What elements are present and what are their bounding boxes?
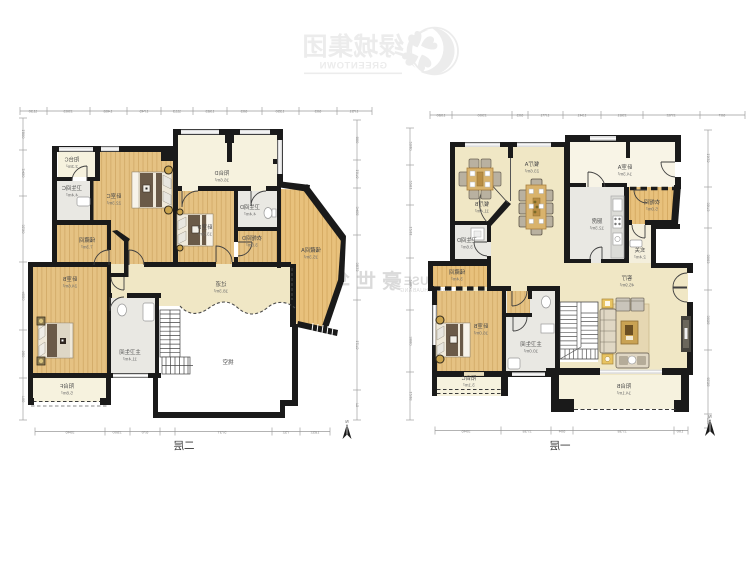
svg-text:1852: 1852 (310, 429, 320, 434)
svg-text:2961: 2961 (617, 112, 627, 117)
svg-text:603: 603 (314, 108, 321, 113)
svg-text:衣帽间D: 衣帽间D (242, 234, 262, 242)
svg-text:5737: 5737 (217, 429, 227, 434)
svg-text:3946: 3946 (461, 428, 471, 433)
svg-text:阳台B: 阳台B (616, 382, 631, 390)
svg-text:1246: 1246 (408, 392, 413, 402)
svg-text:卫生间C: 卫生间C (62, 184, 82, 192)
svg-text:22.3m²: 22.3m² (106, 201, 121, 206)
svg-text:2600: 2600 (112, 429, 122, 434)
svg-text:2702: 2702 (666, 112, 676, 117)
svg-text:卧室B: 卧室B (62, 275, 77, 283)
svg-text:15.3m²: 15.3m² (303, 255, 318, 260)
svg-text:3.4m²: 3.4m² (451, 277, 463, 282)
svg-text:980: 980 (20, 351, 25, 358)
svg-text:3.0m²: 3.0m² (246, 243, 258, 248)
svg-text:卧室B: 卧室B (473, 322, 488, 330)
svg-text:11.4m²: 11.4m² (123, 357, 137, 362)
svg-text:1915: 1915 (705, 154, 710, 164)
svg-text:2.4m²: 2.4m² (634, 255, 646, 260)
svg-text:二层: 二层 (174, 440, 195, 452)
svg-text:客厅: 客厅 (621, 274, 632, 282)
svg-text:1751: 1751 (349, 108, 359, 113)
svg-text:752: 752 (282, 429, 289, 434)
svg-text:2490: 2490 (20, 169, 25, 179)
svg-text:卫生间D: 卫生间D (240, 203, 260, 211)
svg-text:1745: 1745 (139, 108, 149, 113)
svg-text:11.4m²: 11.4m² (475, 209, 489, 214)
svg-text:一层: 一层 (550, 440, 571, 452)
svg-text:1076: 1076 (354, 170, 359, 180)
svg-text:14.1m²: 14.1m² (616, 391, 631, 396)
svg-text:100: 100 (676, 428, 683, 433)
svg-text:2738: 2738 (617, 428, 627, 433)
svg-text:3058: 3058 (705, 316, 710, 326)
svg-text:760: 760 (20, 396, 25, 403)
svg-text:卧室D: 卧室D (198, 223, 213, 231)
svg-text:1408: 1408 (103, 108, 113, 113)
svg-text:2261: 2261 (408, 181, 413, 191)
svg-text:N: N (708, 414, 711, 419)
svg-text:75: 75 (354, 403, 359, 408)
svg-text:挑空: 挑空 (222, 358, 234, 366)
svg-text:卫生间D: 卫生间D (457, 236, 477, 244)
svg-text:8158: 8158 (705, 378, 710, 388)
svg-text:23.6m²: 23.6m² (524, 169, 539, 174)
svg-text:3408: 3408 (354, 207, 359, 217)
svg-text:3190: 3190 (20, 225, 25, 235)
svg-text:4880: 4880 (20, 292, 25, 302)
svg-text:卧室A: 卧室A (617, 163, 632, 171)
svg-text:储藏间: 储藏间 (449, 268, 465, 276)
svg-text:5.0m²: 5.0m² (646, 207, 658, 212)
svg-text:604: 604 (558, 428, 565, 433)
svg-text:1350: 1350 (275, 108, 285, 113)
svg-text:10.0m²: 10.0m² (523, 349, 538, 354)
svg-text:主卫生间: 主卫生间 (520, 340, 542, 348)
svg-text:670: 670 (141, 429, 148, 434)
svg-text:607: 607 (718, 112, 725, 117)
svg-text:1941: 1941 (577, 112, 587, 117)
svg-text:5.8m²: 5.8m² (61, 391, 73, 396)
svg-text:绿城集团: 绿城集团 (302, 32, 404, 61)
svg-text:4.4m²: 4.4m² (66, 193, 78, 198)
svg-text:1244: 1244 (408, 227, 413, 237)
svg-text:厨房: 厨房 (592, 217, 603, 225)
svg-text:3.1m²: 3.1m² (463, 383, 475, 388)
svg-text:2.3m²: 2.3m² (66, 164, 78, 169)
svg-text:2738: 2738 (522, 428, 532, 433)
svg-text:16.0m²: 16.0m² (473, 331, 488, 336)
svg-text:4.4m²: 4.4m² (244, 212, 256, 217)
svg-text:1800: 1800 (20, 130, 25, 140)
svg-text:1080: 1080 (436, 112, 446, 117)
svg-text:24.6m²: 24.6m² (62, 284, 77, 289)
svg-text:2980: 2980 (408, 280, 413, 290)
svg-text:2003: 2003 (63, 108, 73, 113)
svg-text:N: N (345, 419, 348, 424)
svg-text:603: 603 (240, 108, 247, 113)
svg-text:1113: 1113 (172, 108, 181, 113)
svg-text:18.3m²: 18.3m² (213, 289, 228, 294)
svg-text:阳台F: 阳台F (59, 382, 74, 390)
svg-text:13.5m²: 13.5m² (197, 232, 212, 237)
svg-text:603: 603 (516, 112, 523, 117)
svg-text:2540: 2540 (408, 142, 413, 152)
svg-text:3660: 3660 (408, 337, 413, 347)
svg-text:阳台D: 阳台D (215, 169, 230, 177)
svg-text:3063: 3063 (705, 255, 710, 265)
svg-text:45.9m²: 45.9m² (619, 283, 634, 288)
svg-text:12.3m²: 12.3m² (589, 226, 604, 231)
svg-text:主卫生间: 主卫生间 (119, 348, 141, 356)
svg-text:3.6m²: 3.6m² (461, 245, 473, 250)
svg-text:1130: 1130 (28, 108, 37, 113)
svg-text:储藏间A: 储藏间A (301, 246, 321, 254)
svg-text:阳台C: 阳台C (462, 374, 477, 382)
svg-text:1275: 1275 (354, 341, 359, 351)
svg-text:GREENTOWN: GREENTOWN (319, 61, 387, 72)
svg-text:3973: 3973 (705, 203, 710, 213)
svg-text:卧室C: 卧室C (107, 192, 122, 200)
svg-text:餐厅B: 餐厅B (474, 200, 489, 208)
svg-text:过道: 过道 (215, 280, 226, 288)
svg-text:2900: 2900 (477, 112, 487, 117)
svg-text:3946: 3946 (65, 429, 75, 434)
svg-text:3813: 3813 (354, 263, 359, 273)
svg-text:阳台C: 阳台C (65, 156, 80, 164)
svg-text:玄关: 玄关 (634, 246, 645, 254)
svg-text:餐厅A: 餐厅A (524, 160, 539, 168)
svg-text:衣帽间: 衣帽间 (644, 198, 660, 206)
svg-text:储藏间: 储藏间 (79, 236, 95, 244)
svg-text:800: 800 (354, 137, 359, 144)
svg-text:14.3m²: 14.3m² (617, 172, 632, 177)
svg-text:16.6m²: 16.6m² (214, 178, 229, 183)
svg-text:7.3m²: 7.3m² (81, 245, 93, 250)
svg-text:1771: 1771 (540, 112, 550, 117)
svg-text:1983: 1983 (205, 108, 215, 113)
